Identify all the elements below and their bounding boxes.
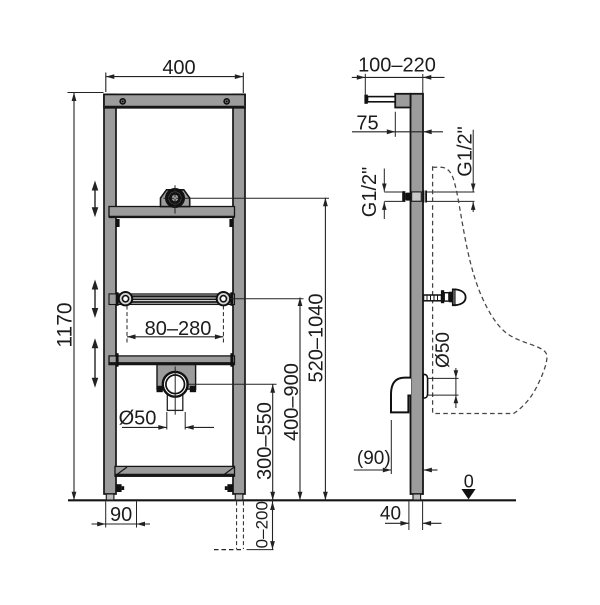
- svg-text:Ø50: Ø50: [119, 407, 157, 429]
- svg-text:1170: 1170: [54, 302, 77, 347]
- svg-text:40: 40: [380, 503, 401, 524]
- svg-text:G1/2": G1/2": [359, 167, 381, 217]
- svg-text:0–200: 0–200: [253, 501, 272, 548]
- svg-text:(90): (90): [357, 448, 391, 469]
- svg-text:90: 90: [110, 504, 132, 526]
- svg-text:100–220: 100–220: [358, 55, 436, 77]
- svg-text:400–900: 400–900: [281, 363, 303, 441]
- svg-text:400: 400: [162, 57, 195, 79]
- svg-text:520–1040: 520–1040: [305, 294, 327, 383]
- svg-text:0: 0: [464, 472, 474, 492]
- svg-text:300–550: 300–550: [254, 402, 276, 480]
- svg-text:Ø50: Ø50: [433, 332, 454, 368]
